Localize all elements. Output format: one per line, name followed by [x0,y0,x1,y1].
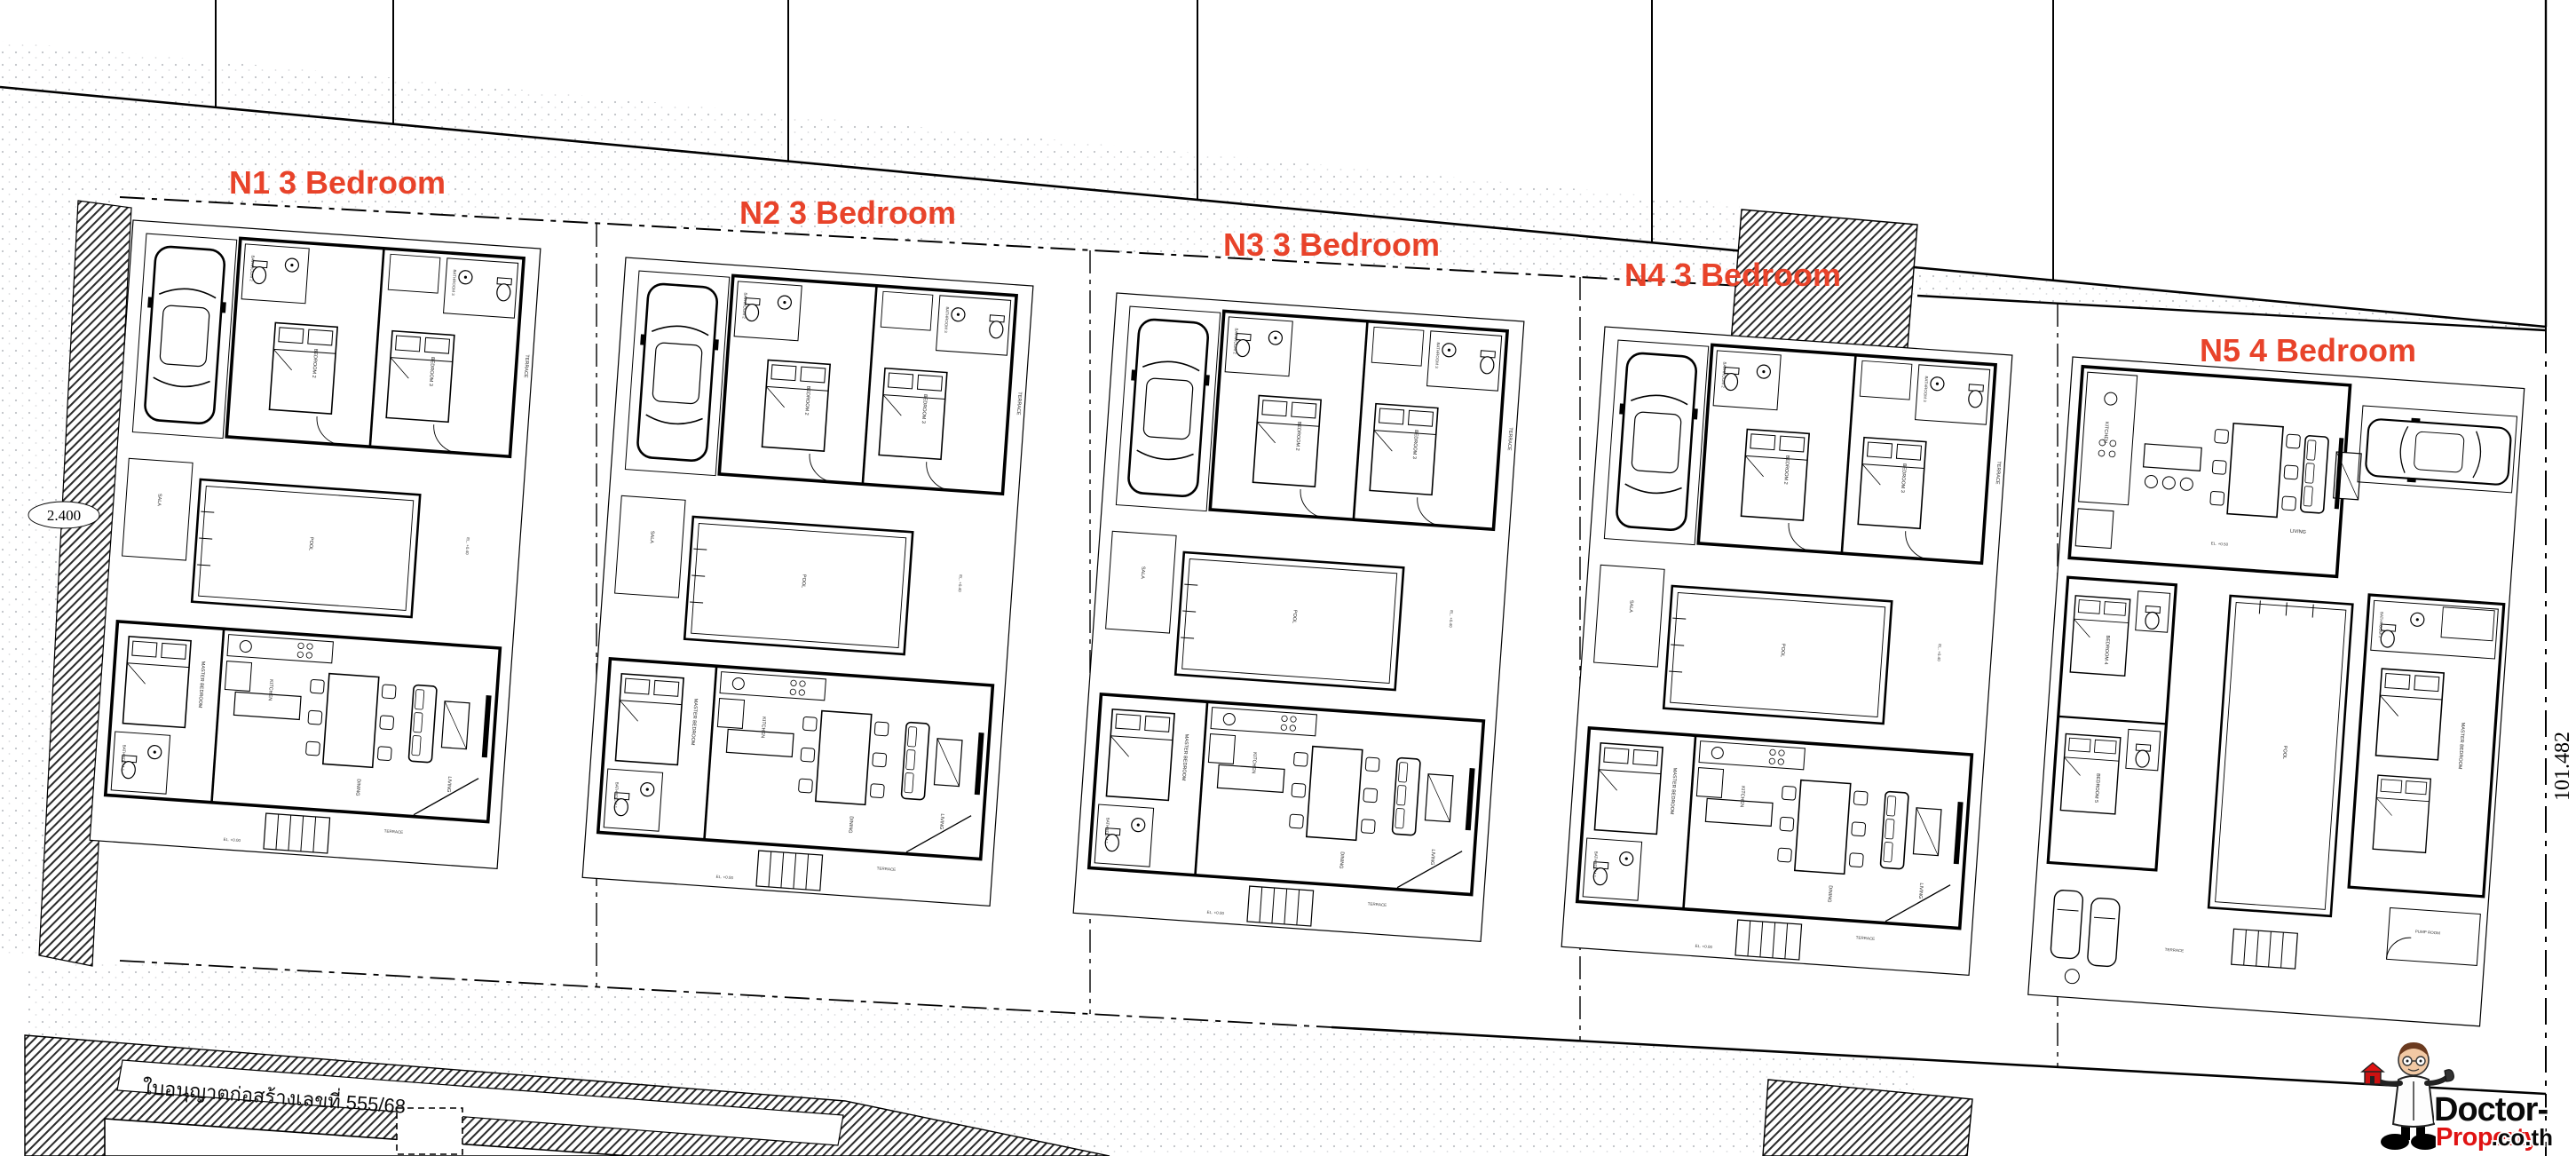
dimension-left: 2.400 [28,502,99,528]
villa-plan-n3 [1073,293,1524,941]
label-n5: N5 4 Bedroom [2200,332,2416,368]
dashed-plot-box [397,1108,462,1154]
villa-plan-n1 [90,220,541,868]
villa-plan-n2 [582,257,1033,906]
dimension-right: 101.482 [2551,732,2574,801]
villa-plan-n4 [1561,327,2012,975]
label-n2: N2 3 Bedroom [739,194,956,231]
villa-plan-n5 [2028,357,2525,1026]
site-plan-drawing: PUMP ROOM BEDROOM 2 BEDROO [0,0,2576,1156]
logo-text-coth: .co.th [2492,1124,2553,1151]
label-n3: N3 3 Bedroom [1223,226,1440,263]
label-n4: N4 3 Bedroom [1624,257,1841,293]
svg-text:2.400: 2.400 [47,507,81,524]
stethoscope-icon [2445,1070,2454,1081]
label-n1: N1 3 Bedroom [229,164,446,201]
